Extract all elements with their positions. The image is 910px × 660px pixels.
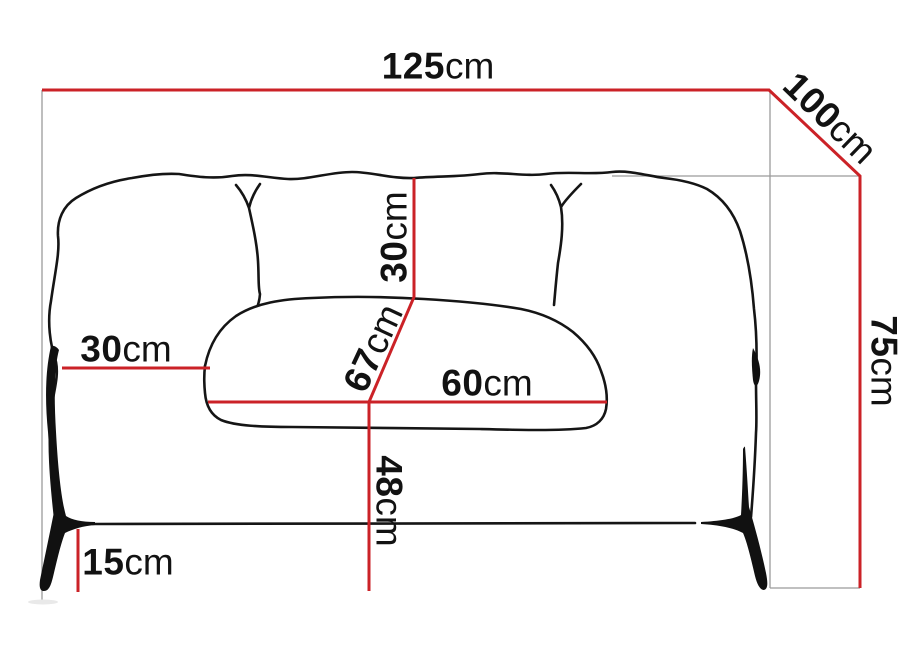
leg-height-unit: cm xyxy=(124,542,173,583)
seat-width-dimension-label: 60cm xyxy=(441,365,532,402)
overall-width-dimension-label: 125cm xyxy=(382,48,495,85)
seat-height-unit: cm xyxy=(369,497,410,546)
leg-height-value: 15 xyxy=(82,542,124,583)
overall-height-dimension-label: 75cm xyxy=(866,315,903,406)
seat-width-unit: cm xyxy=(483,363,532,404)
armrest-width-dimension-label: 30cm xyxy=(80,331,171,368)
backrest-height-unit: cm xyxy=(374,191,415,240)
backrest-height-dimension-label: 30cm xyxy=(376,191,413,282)
overall-width-unit: cm xyxy=(445,46,494,87)
overall-height-value: 75 xyxy=(864,315,905,357)
leg-height-dimension-label: 15cm xyxy=(82,544,173,581)
armrest-width-unit: cm xyxy=(122,329,171,370)
backrest-height-value: 30 xyxy=(374,241,415,283)
right-leg xyxy=(701,447,767,590)
seat-height-value: 48 xyxy=(369,455,410,497)
seat-width-value: 60 xyxy=(441,363,483,404)
overall-width-value: 125 xyxy=(382,46,445,87)
seat-height-dimension-label: 48cm xyxy=(371,455,408,546)
overall-height-unit: cm xyxy=(864,357,905,406)
armrest-width-value: 30 xyxy=(80,329,122,370)
sofa-dimension-diagram: 125cm 100cm 75cm 30cm 67cm 60cm 48cm 30c… xyxy=(0,0,910,660)
floor-shadow xyxy=(28,600,58,605)
right-seam xyxy=(551,184,581,305)
